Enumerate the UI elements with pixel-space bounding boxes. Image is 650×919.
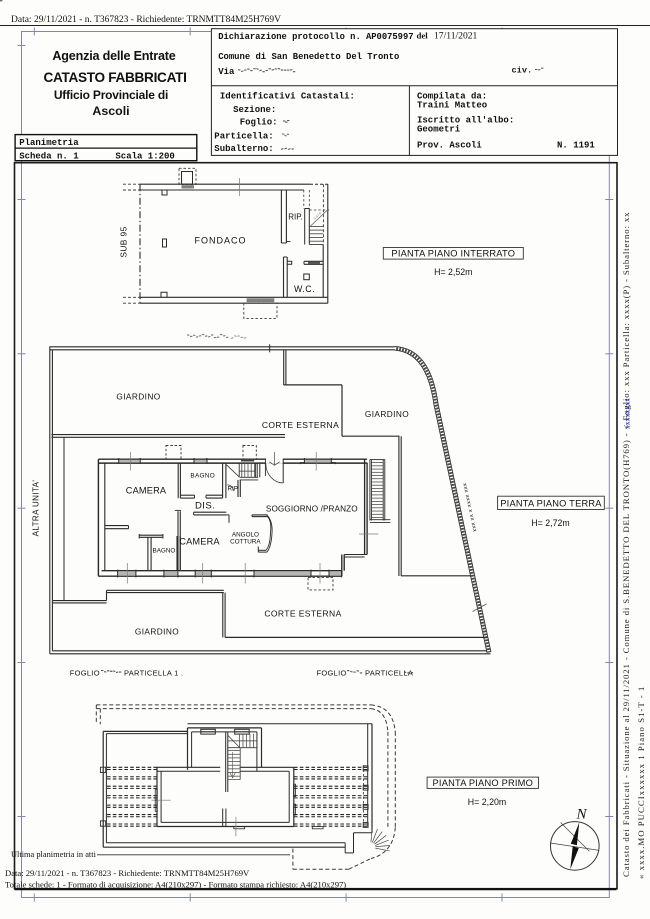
svg-text:PIANTA PIANO PRIMO: PIANTA PIANO PRIMO xyxy=(433,778,534,788)
svg-text:DIS.: DIS. xyxy=(195,501,215,512)
svg-text:Subalterno:: Subalterno: xyxy=(214,144,273,154)
svg-text:Scheda n. 1: Scheda n. 1 xyxy=(19,152,79,162)
svg-text:del: del xyxy=(417,31,429,41)
svg-text:Dichiarazione protocollo n. AP: Dichiarazione protocollo n. AP0075997 xyxy=(218,32,413,42)
svg-text:PARTICELLA 1 .: PARTICELLA 1 . xyxy=(124,668,183,677)
svg-text:CORTE ESTERNA: CORTE ESTERNA xyxy=(264,608,341,618)
svg-text:N: N xyxy=(575,807,587,823)
svg-text:PIANTA PIANO TERRA: PIANTA PIANO TERRA xyxy=(500,498,602,508)
svg-text:Data: 29/11/2021 - n. T367823: Data: 29/11/2021 - n. T367823 - Richiede… xyxy=(11,15,281,25)
svg-text:GIARDINO: GIARDINO xyxy=(365,409,409,419)
svg-text:SOGGIORNO /PRANZO: SOGGIORNO /PRANZO xyxy=(266,505,358,514)
svg-text:BAGNO: BAGNO xyxy=(153,547,176,554)
svg-text:Totale schede: 1 - Formato di: Totale schede: 1 - Formato di acquisizio… xyxy=(5,880,346,890)
svg-text:Catasto dei Fabbricati - Situ: Catasto dei Fabbricati - Situazione al 2… xyxy=(621,212,631,877)
svg-text:CAMERA: CAMERA xyxy=(179,537,220,547)
svg-text:Ultima planimetria in atti: Ultima planimetria in atti xyxy=(11,850,97,859)
svg-text:Geometri: Geometri xyxy=(417,125,461,135)
svg-text:Planimetria: Planimetria xyxy=(19,138,79,148)
svg-text:SUB 95: SUB 95 xyxy=(119,226,129,257)
svg-text:Agenzia delle Entrate: Agenzia delle Entrate xyxy=(52,49,175,63)
svg-text:Identificativi Catastali:: Identificativi Catastali: xyxy=(220,92,355,102)
svg-text:xxxxxxxx: xxxxxxxx xyxy=(624,398,632,429)
svg-text:CORTE ESTERNA: CORTE ESTERNA xyxy=(262,420,339,430)
svg-text:FOGLIO: FOGLIO xyxy=(70,668,100,677)
svg-text:Comune di San Benedetto Del Tr: Comune di San Benedetto Del Tronto xyxy=(218,52,399,62)
svg-text:FOGLIO: FOGLIO xyxy=(317,668,347,677)
svg-text:H= 2,52m: H= 2,52m xyxy=(434,267,472,277)
svg-text:PARTICELLA: PARTICELLA xyxy=(365,668,413,677)
svg-text:FONDACO: FONDACO xyxy=(195,235,247,245)
svg-text:COTTURA: COTTURA xyxy=(230,539,261,546)
svg-text:N. 1191: N. 1191 xyxy=(557,141,595,151)
svg-text:Foglio:: Foglio: xyxy=(240,118,278,128)
svg-text:PIANTA PIANO INTERRATO: PIANTA PIANO INTERRATO xyxy=(391,248,515,258)
svg-text:GIARDINO: GIARDINO xyxy=(135,626,179,636)
svg-text:W.C.: W.C. xyxy=(294,284,315,294)
svg-text:Scala 1:200: Scala 1:200 xyxy=(115,152,174,162)
svg-text:CAMERA: CAMERA xyxy=(126,486,167,496)
svg-text:Data: 29/11/2021 - n. T367823: Data: 29/11/2021 - n. T367823 - Richiede… xyxy=(5,868,250,878)
svg-text:Prov. Ascoli: Prov. Ascoli xyxy=(417,141,482,151)
svg-text:H= 2,20m: H= 2,20m xyxy=(468,797,506,807)
svg-text:BAGNO: BAGNO xyxy=(190,473,215,480)
svg-text:« xxxx.MO PUCCIxxxxxx 1 Piano: « xxxx.MO PUCCIxxxxxx 1 Piano S1-T - 1 xyxy=(636,686,646,879)
svg-text:Ascoli: Ascoli xyxy=(92,104,129,118)
svg-text:civ.: civ. xyxy=(512,65,533,75)
svg-text:RIP.: RIP. xyxy=(288,213,303,222)
svg-text:Particella:: Particella: xyxy=(214,131,273,141)
svg-text:Sezione:: Sezione: xyxy=(233,105,276,115)
svg-text:H= 2,72m: H= 2,72m xyxy=(531,518,569,528)
svg-text:ANGOLO: ANGOLO xyxy=(232,531,259,538)
svg-text:ALTRA UNITA': ALTRA UNITA' xyxy=(32,480,41,537)
svg-text:CATASTO FABBRICATI: CATASTO FABBRICATI xyxy=(43,70,186,85)
svg-text:Ufficio Provinciale di: Ufficio Provinciale di xyxy=(54,88,168,102)
svg-text:Traini Matteo: Traini Matteo xyxy=(417,101,487,111)
svg-text:RIP: RIP xyxy=(227,485,238,492)
svg-text:GIARDINO: GIARDINO xyxy=(116,391,160,401)
svg-text:Via: Via xyxy=(218,67,235,77)
svg-text:17/11/2021: 17/11/2021 xyxy=(434,31,478,42)
